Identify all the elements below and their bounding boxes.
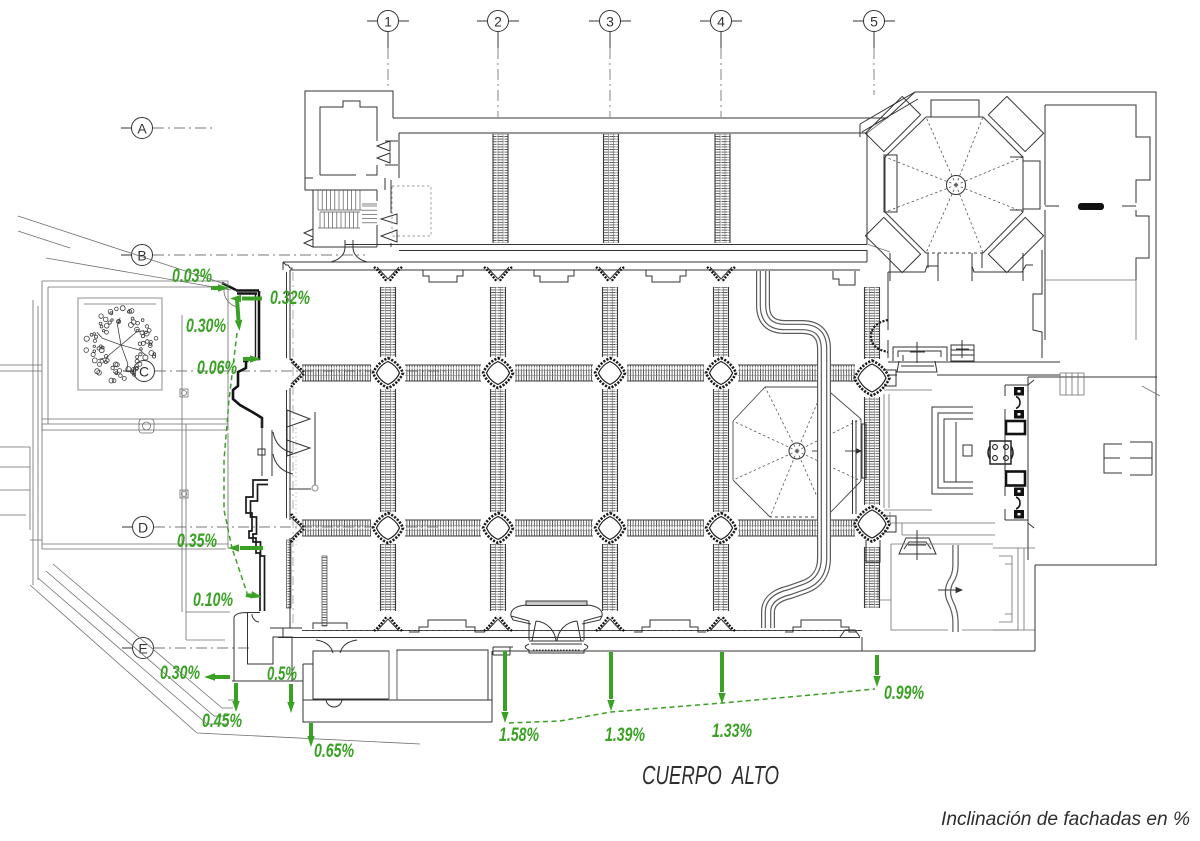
svg-text:0.30%: 0.30% (186, 316, 226, 337)
svg-text:0.5%: 0.5% (267, 664, 297, 685)
svg-text:1.58%: 1.58% (499, 725, 539, 746)
svg-text:0.35%: 0.35% (177, 531, 217, 552)
svg-text:0.30%: 0.30% (160, 663, 200, 684)
svg-text:4: 4 (717, 14, 725, 30)
svg-text:0.03%: 0.03% (172, 266, 212, 287)
svg-text:CUERPO ALTO: CUERPO ALTO (642, 760, 779, 790)
svg-text:0.32%: 0.32% (270, 288, 310, 309)
svg-text:1: 1 (384, 14, 392, 30)
svg-text:A: A (137, 121, 147, 137)
svg-text:0.45%: 0.45% (202, 711, 242, 732)
svg-text:5: 5 (870, 14, 878, 30)
svg-text:E: E (138, 641, 147, 657)
svg-text:0.06%: 0.06% (197, 358, 237, 379)
svg-text:0.99%: 0.99% (884, 683, 924, 704)
svg-text:1.39%: 1.39% (605, 725, 645, 746)
svg-text:1.33%: 1.33% (712, 721, 752, 742)
svg-text:D: D (138, 520, 148, 536)
svg-text:Inclinación de fachadas en %: Inclinación de fachadas en % (941, 808, 1190, 830)
svg-text:3: 3 (606, 14, 614, 30)
svg-text:2: 2 (494, 14, 502, 30)
svg-text:0.10%: 0.10% (193, 590, 233, 611)
svg-text:0.65%: 0.65% (314, 741, 354, 762)
